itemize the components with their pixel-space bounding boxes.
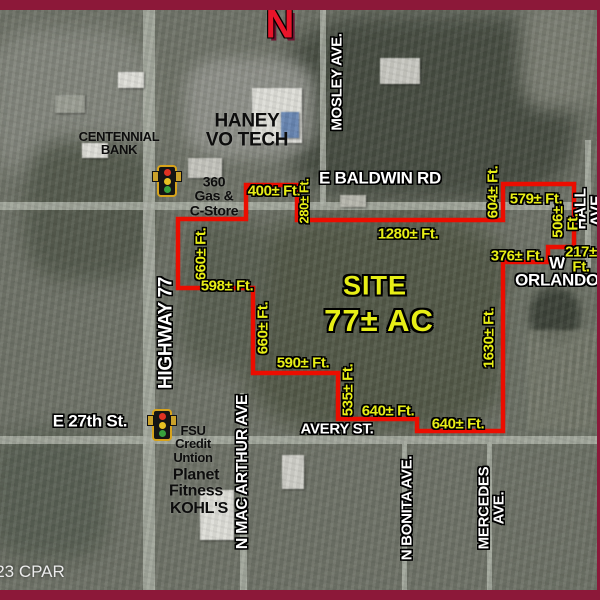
traffic-light-baldwin-icon: [157, 165, 177, 197]
dim-660-ft-south: 660± Ft.: [255, 302, 270, 355]
street-n-mac-arthur-ave: N MAC ARTHUR AVE: [235, 395, 251, 550]
map-labels-layer: MOSLEY AVE.E BALDWIN RDHALL AVE.W ORLAND…: [0, 0, 600, 600]
border-top: [0, 0, 600, 10]
photo-credit: 23 CPAR: [0, 562, 65, 582]
dim-400-ft: 400± Ft.: [248, 183, 301, 198]
street-e-baldwin-rd: E BALDWIN RD: [319, 169, 441, 186]
dim-506-ft: 506± Ft.: [551, 205, 582, 239]
dim-217-ft: 217± Ft.: [565, 245, 597, 276]
place-centennial-bank: CENTENNIAL BANK: [79, 130, 160, 157]
dim-1280-ft: 1280± Ft.: [378, 226, 439, 241]
dim-376-ft: 376± Ft.: [491, 248, 544, 263]
traffic-light-y-lamp: [159, 422, 166, 429]
aerial-map: MOSLEY AVE.E BALDWIN RDHALL AVE.W ORLAND…: [0, 0, 600, 600]
dim-640-ft-west: 640± Ft.: [362, 403, 415, 418]
street-mercedes-ave: MERCEDES AVE.: [477, 454, 508, 562]
traffic-light-g-lamp: [159, 430, 166, 437]
street-e-27th-st: E 27th St.: [53, 412, 127, 429]
dim-660-ft-north: 660± Ft.: [193, 228, 208, 281]
place-fsu-credit-union: FSU Credit Untion: [173, 424, 212, 464]
traffic-light-r-lamp: [159, 413, 166, 420]
dim-1630-ft: 1630± Ft.: [481, 308, 496, 369]
traffic-light-r-lamp: [164, 169, 171, 176]
dim-280-ft: 280± Ft.: [297, 178, 310, 223]
place-haney-vo-tech: HANEY VO TECH: [206, 112, 288, 151]
map-frame: MOSLEY AVE.E BALDWIN RDHALL AVE.W ORLAND…: [0, 0, 600, 600]
street-mosley-ave: MOSLEY AVE.: [329, 33, 344, 130]
street-highway-77: HIGHWAY 77: [156, 277, 175, 389]
street-avery-st: AVERY ST.: [301, 421, 374, 436]
traffic-light-y-lamp: [164, 178, 171, 185]
place-kohls: KOHL'S: [170, 501, 228, 517]
dim-640-ft-east: 640± Ft.: [432, 416, 485, 431]
place-360-gas-c-store: 360 Gas & C-Store: [190, 175, 238, 218]
traffic-light-27th-icon: [152, 409, 172, 441]
site-acreage: 77± AC: [324, 303, 434, 339]
street-n-bonita-ave: N BONITA AVE.: [399, 456, 414, 560]
dim-604-ft: 604± Ft.: [485, 166, 500, 219]
site-title: SITE: [343, 271, 407, 302]
dim-535-ft: 535± Ft.: [340, 364, 355, 417]
dim-590-ft: 590± Ft.: [277, 355, 330, 370]
dim-598-ft: 598± Ft.: [201, 278, 254, 293]
place-planet-fitness: Planet Fitness: [169, 468, 223, 501]
traffic-light-g-lamp: [164, 186, 171, 193]
border-bottom: [0, 590, 600, 600]
